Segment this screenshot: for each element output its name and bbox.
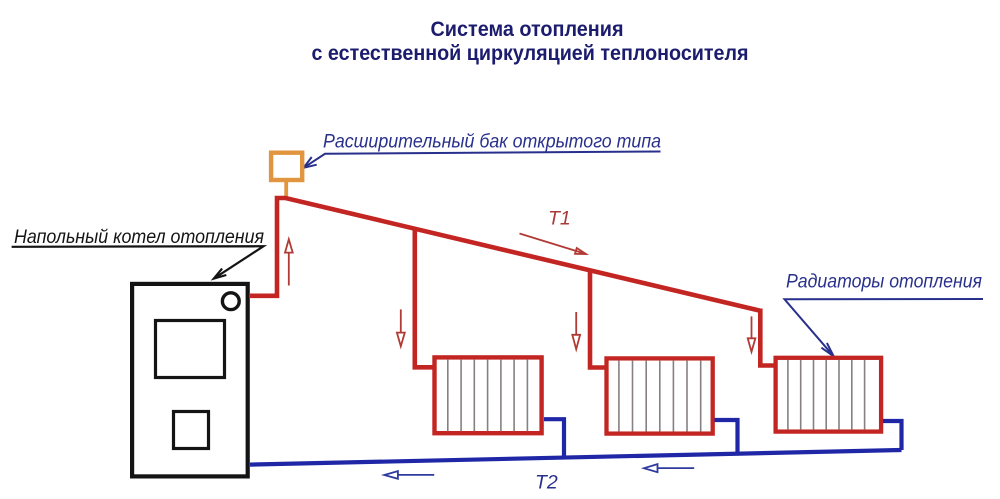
svg-text:Система отопления: Система отопления [431, 17, 624, 41]
svg-text:Т2: Т2 [535, 471, 558, 493]
svg-text:Радиаторы отопления: Радиаторы отопления [786, 272, 982, 293]
svg-text:Расширительный бак открытого т: Расширительный бак открытого типа [323, 132, 661, 153]
svg-text:с естественной циркуляцией теп: с естественной циркуляцией теплоносителя [312, 41, 749, 65]
svg-text:Т1: Т1 [548, 207, 571, 229]
svg-text:Напольный котел отопления: Напольный котел отопления [14, 226, 265, 248]
